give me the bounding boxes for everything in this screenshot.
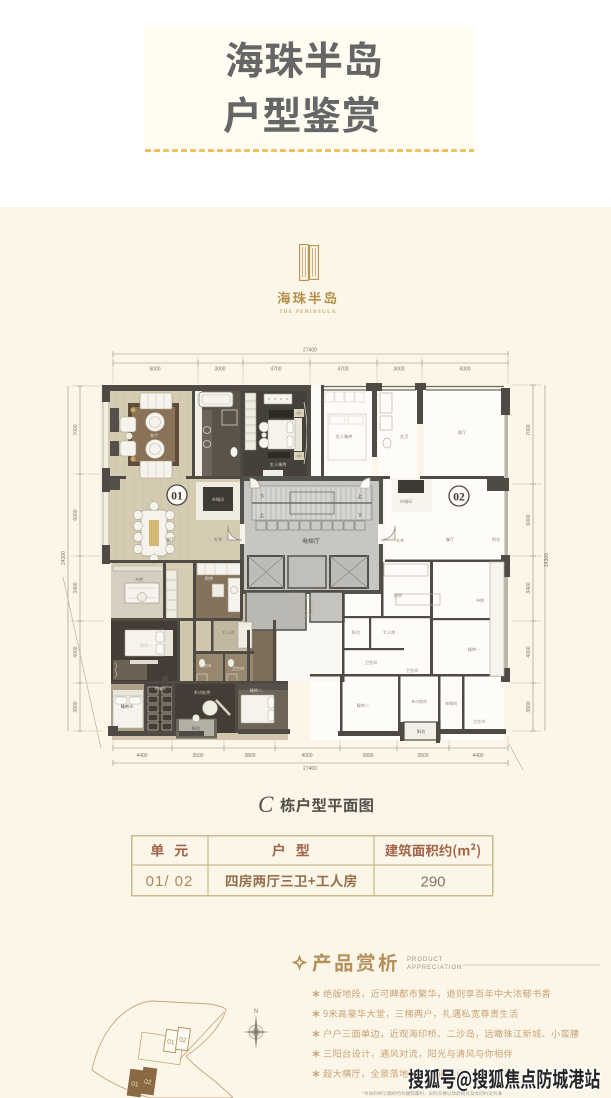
svg-text:4000: 4000 — [301, 753, 312, 759]
svg-text:01: 01 — [167, 1039, 176, 1047]
svg-text:6000: 6000 — [73, 509, 79, 520]
svg-text:01/ 02: 01/ 02 — [146, 873, 194, 890]
svg-text:N: N — [254, 1009, 258, 1015]
svg-text:3000: 3000 — [214, 367, 225, 373]
svg-text:4400: 4400 — [136, 753, 147, 759]
svg-text:4000: 4000 — [73, 646, 79, 657]
svg-text:02: 02 — [453, 492, 465, 504]
svg-text:24300: 24300 — [544, 553, 550, 567]
svg-text:THE PENINSULA: THE PENINSULA — [279, 309, 336, 315]
svg-text:02: 02 — [144, 1079, 153, 1087]
svg-text:3400: 3400 — [73, 582, 79, 593]
svg-text:4700: 4700 — [270, 367, 281, 373]
svg-text:7000: 7000 — [526, 424, 532, 435]
svg-text:3500: 3500 — [192, 753, 203, 759]
svg-text:6000: 6000 — [526, 514, 532, 525]
svg-text:3500: 3500 — [417, 753, 428, 759]
svg-text:24300: 24300 — [61, 551, 67, 565]
svg-text:02: 02 — [179, 1037, 188, 1045]
svg-text:PRODUCT: PRODUCT — [407, 956, 443, 963]
svg-text:3000: 3000 — [393, 367, 404, 373]
svg-text:290: 290 — [420, 874, 445, 891]
svg-text:4400: 4400 — [472, 753, 483, 759]
svg-text:4000: 4000 — [526, 646, 532, 657]
svg-text:01: 01 — [171, 491, 183, 503]
svg-text:6000: 6000 — [149, 367, 160, 373]
svg-text:3800: 3800 — [73, 701, 79, 712]
svg-text:3800: 3800 — [526, 701, 532, 712]
svg-text:3800: 3800 — [362, 753, 373, 759]
svg-text:3400: 3400 — [526, 582, 532, 593]
svg-text:6000: 6000 — [459, 367, 470, 373]
svg-text:3800: 3800 — [244, 753, 255, 759]
svg-text:4700: 4700 — [337, 367, 348, 373]
svg-text:7000: 7000 — [73, 424, 79, 435]
svg-text:01: 01 — [131, 1081, 140, 1089]
svg-text:27400: 27400 — [303, 766, 317, 772]
svg-text:APPRECIATION: APPRECIATION — [407, 964, 462, 971]
svg-text:C: C — [258, 792, 274, 817]
svg-text:27400: 27400 — [303, 348, 317, 354]
